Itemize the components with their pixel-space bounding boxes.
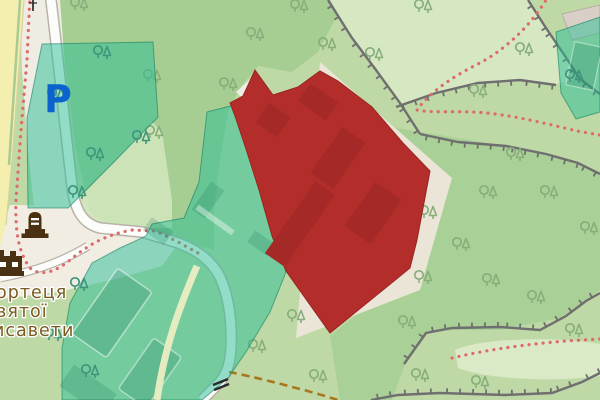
parking-label: P: [44, 77, 72, 121]
place-name-line-1: ортеця: [0, 283, 67, 303]
place-name-line-3: исавети: [0, 321, 74, 341]
place-name-line-2: вятої: [0, 302, 48, 322]
map-canvas[interactable]: P ортеця вятої исавети: [0, 0, 600, 400]
map-viewport[interactable]: P ортеця вятої исавети: [0, 0, 600, 400]
